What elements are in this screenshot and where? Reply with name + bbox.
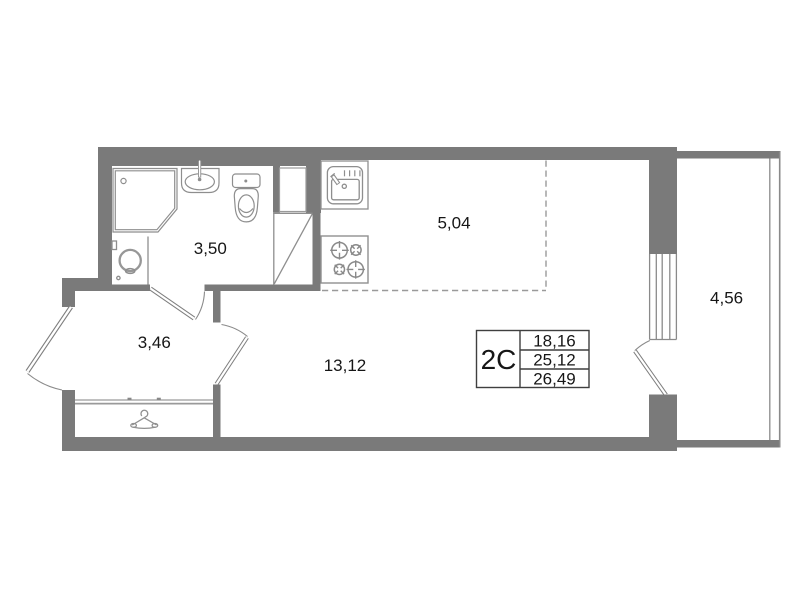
svg-text:3,50: 3,50: [194, 239, 227, 258]
svg-text:25,12: 25,12: [533, 351, 576, 370]
svg-text:13,12: 13,12: [324, 356, 367, 375]
svg-text:3,46: 3,46: [138, 333, 171, 352]
svg-text:18,16: 18,16: [533, 331, 576, 350]
svg-text:26,49: 26,49: [533, 369, 576, 388]
svg-text:5,04: 5,04: [437, 214, 470, 233]
svg-text:4,56: 4,56: [710, 289, 743, 308]
svg-text:2C: 2C: [481, 344, 517, 375]
